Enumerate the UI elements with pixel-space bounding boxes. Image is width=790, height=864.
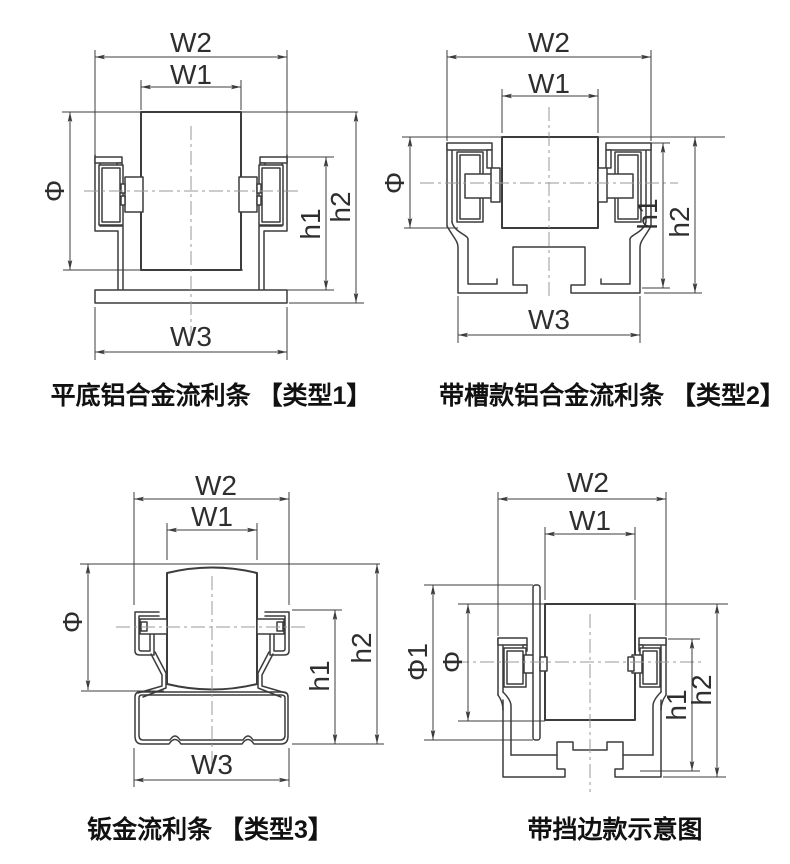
diagram-type2: W2 W1 Φ h1 h2 W3 带槽款铝合金流利条 【类型2】 xyxy=(379,27,785,410)
type2-dim-w3: W3 xyxy=(528,304,570,335)
diagram-type1: W2 W1 Φ h1 h2 W3 平底铝合金流利条 【类型1】 xyxy=(39,27,371,410)
type2-dim-w2: W2 xyxy=(528,27,570,58)
type4-profile xyxy=(498,585,666,777)
type2-caption: 带槽款铝合金流利条 【类型2】 xyxy=(439,381,785,410)
type1-left-hook xyxy=(95,157,122,163)
type3-dim-h1: h1 xyxy=(304,660,335,691)
type4-dim-phi: Φ xyxy=(437,651,468,673)
type3-centerlines xyxy=(116,576,308,766)
type2-dim-h2: h2 xyxy=(664,206,695,237)
type2-dim-w1: W1 xyxy=(528,68,570,99)
type1-dim-phi: Φ xyxy=(39,180,70,202)
type3-dim-w1: W1 xyxy=(191,501,233,532)
type2-right-hook xyxy=(606,143,651,150)
type3-caption: 钣金流利条 【类型3】 xyxy=(87,815,333,844)
type1-dim-w3: W3 xyxy=(170,321,212,352)
type4-caption: 带挡边款示意图 xyxy=(527,815,702,844)
type1-dim-h1: h1 xyxy=(295,208,326,239)
type4-dim-h2: h2 xyxy=(686,674,717,705)
type2-right-axle xyxy=(605,174,633,198)
type3-dim-phi: Φ xyxy=(57,611,88,633)
type1-dim-w1: W1 xyxy=(170,59,212,90)
type2-dim-h1: h1 xyxy=(632,198,663,229)
type3-dim-h2: h2 xyxy=(346,632,377,663)
type1-right-axle xyxy=(239,177,257,212)
type1-left-axle xyxy=(125,177,143,212)
type4-dim-phi1: Φ1 xyxy=(402,643,433,681)
type4-dim-w1: W1 xyxy=(569,505,611,536)
type3-dim-w3: W3 xyxy=(191,749,233,780)
type1-right-hook xyxy=(260,157,287,163)
type3-dim-w2: W2 xyxy=(195,470,237,501)
type2-left-hook xyxy=(447,143,492,150)
type1-dim-h2: h2 xyxy=(325,191,356,222)
type2-dim-phi: Φ xyxy=(379,172,410,194)
type1-caption: 平底铝合金流利条 【类型1】 xyxy=(51,381,372,410)
roller-track-cross-sections: W2 W1 Φ h1 h2 W3 平底铝合金流利条 【类型1】 xyxy=(0,0,790,864)
diagram-type4: W2 W1 Φ1 Φ h1 h2 带挡边款示意图 xyxy=(402,467,728,844)
type4-right-hook xyxy=(639,638,666,645)
type2-left-axle xyxy=(465,174,493,198)
type4-left-hook xyxy=(498,638,527,645)
type1-dim-w2: W2 xyxy=(170,27,212,58)
technical-drawing-sheet: W2 W1 Φ h1 h2 W3 平底铝合金流利条 【类型1】 xyxy=(0,0,790,864)
type4-dim-w2: W2 xyxy=(567,467,609,498)
diagram-type3: W2 W1 Φ h1 h2 W3 钣金流利条 【类型3】 xyxy=(57,470,384,844)
